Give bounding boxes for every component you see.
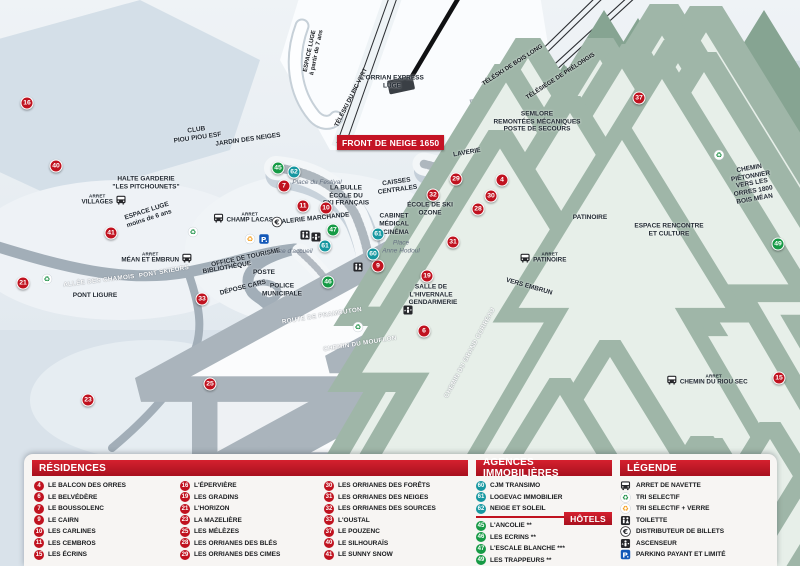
legend-item-label: TRI SELECTIF <box>636 494 680 501</box>
residence-name: LES CEMBROS <box>48 540 96 547</box>
hotel-name: LES ECRINS ** <box>490 534 536 541</box>
residence-number-badge: 31 <box>324 492 334 502</box>
map-marker: 19 <box>421 270 434 283</box>
bus-stop-name: PATINOIRE <box>533 257 566 264</box>
agencies-list: 60 CJM TRANSIMO 61 LOGEVAC IMMOBILIER 62… <box>476 480 562 515</box>
map-marker: 40 <box>50 160 63 173</box>
residence-number-badge: 40 <box>324 538 334 548</box>
residence-entry: 10 LES CARLINES <box>34 526 126 538</box>
residence-number-badge: 11 <box>34 538 44 548</box>
residence-name: LES ORRIANES DES FORÊTS <box>338 482 430 489</box>
hotel-entry: 45 L'ANCOLIE ** <box>476 520 565 532</box>
residence-name: LA MAZELIÈRE <box>194 517 242 524</box>
residences-column-3: 30 LES ORRIANES DES FORÊTS 31 LES ORRIAN… <box>324 480 436 561</box>
agency-name: LOGEVAC IMMOBILIER <box>490 494 562 501</box>
residence-name: LE BELVÉDÈRE <box>48 494 97 501</box>
residence-entry: 16 L'ÉPERVIÈRE <box>180 480 280 492</box>
map-marker: 6 <box>418 325 431 338</box>
map-label: L'ORRIAN EXPRESS LUGE <box>360 74 424 89</box>
agency-number-badge: 60 <box>476 481 486 491</box>
hotel-number-badge: 49 <box>476 555 486 565</box>
map-marker: 46 <box>322 276 335 289</box>
residence-number-badge: 25 <box>180 527 190 537</box>
map-marker: 45 <box>272 162 285 175</box>
map-marker: 11 <box>297 200 310 213</box>
map-service-icon <box>714 150 725 161</box>
agency-name: CJM TRANSIMO <box>490 482 540 489</box>
map-marker: 37 <box>633 92 646 105</box>
map-label: SEMLORE REMONTÉES MÉCANIQUES POSTE DE SE… <box>493 111 580 134</box>
residence-number-badge: 37 <box>324 527 334 537</box>
agencies-header: AGENCES IMMOBILIÈRES <box>476 460 612 476</box>
agency-name: NEIGE ET SOLEIL <box>490 505 546 512</box>
map-marker: 32 <box>427 189 440 202</box>
map-marker: 29 <box>450 173 463 186</box>
legend-item: TOILETTE <box>620 515 726 527</box>
residence-number-badge: 23 <box>180 515 190 525</box>
residence-entry: 28 LES ORRIANES DES BLÉS <box>180 538 280 550</box>
residence-entry: 7 LE BOUSSOLENC <box>34 503 126 515</box>
map-label: CINÉMA <box>383 229 409 237</box>
hotel-name: L'ANCOLIE ** <box>490 522 532 529</box>
map-marker: 28 <box>472 203 485 216</box>
map-label: ÉCOLE DE SKI OZONE <box>407 201 453 216</box>
legend-item-icon <box>620 503 631 514</box>
map-marker: 33 <box>196 293 209 306</box>
residence-entry: 4 LE BALCON DES ORRES <box>34 480 126 492</box>
bus-icon <box>116 194 127 205</box>
residence-name: L'HORIZON <box>194 505 230 512</box>
residence-name: LES MÉLÈZES <box>194 528 239 535</box>
map-marker: 61 <box>372 228 385 241</box>
legend-item: TRI SELECTIF <box>620 492 726 504</box>
residence-entry: 25 LES MÉLÈZES <box>180 526 280 538</box>
residence-name: LES ORRIANES DES NEIGES <box>338 494 428 501</box>
residence-entry: 30 LES ORRIANES DES FORÊTS <box>324 480 436 492</box>
hotel-name: L'ESCALE BLANCHE *** <box>490 545 565 552</box>
bus-icon <box>213 212 224 223</box>
bus-stop: ARRET CHEMIN DU RIOU SEC <box>666 374 747 385</box>
map-label: GENDARMERIE <box>409 299 458 307</box>
map-marker: 21 <box>17 277 30 290</box>
legende-header: LÉGENDE <box>620 460 770 476</box>
hotel-entry: 47 L'ESCALE BLANCHE *** <box>476 543 565 555</box>
residence-name: LE BOUSSOLENC <box>48 505 104 512</box>
legend-item-label: ARRET DE NAVETTE <box>636 482 701 489</box>
map-label: POSTE <box>253 269 275 277</box>
legend-item-label: TRI SELECTIF + VERRE <box>636 505 710 512</box>
residence-number-badge: 10 <box>34 527 44 537</box>
map-label: POLICE MUNICIPALE <box>262 282 302 297</box>
map-marker: 30 <box>485 190 498 203</box>
residence-number-badge: 41 <box>324 550 334 560</box>
bus-icon <box>666 374 677 385</box>
residence-name: LES ORRIANES DES CIMES <box>194 551 280 558</box>
resort-village-map: ♻ ♻ € <box>0 0 800 566</box>
agency-entry: 60 CJM TRANSIMO <box>476 480 562 492</box>
map-label: PONT LIGURE <box>73 292 117 300</box>
map-label: SALLE DE L'HIVERNALE <box>409 283 452 298</box>
bus-stop-name: VILLAGES <box>82 199 114 206</box>
residence-number-badge: 9 <box>34 515 44 525</box>
residence-entry: 11 LES CEMBROS <box>34 538 126 550</box>
legend-item-label: PARKING PAYANT ET LIMITÉ <box>636 551 726 558</box>
bus-stop-name: CHEMIN DU RIOU SEC <box>680 379 748 386</box>
legend-item: ARRET DE NAVETTE <box>620 480 726 492</box>
residences-header: RÉSIDENCES <box>32 460 468 476</box>
map-service-icon <box>403 305 414 316</box>
residence-name: LE SILHOURAÏS <box>338 540 388 547</box>
residence-entry: 15 LES ÉCRINS <box>34 549 126 561</box>
map-marker: 10 <box>320 202 333 215</box>
map-marker: 47 <box>327 224 340 237</box>
map-marker: 16 <box>21 97 34 110</box>
map-service-icon <box>42 274 53 285</box>
map-marker: 60 <box>367 248 380 261</box>
map-service-icon <box>272 217 283 228</box>
residence-entry: 33 L'OUSTAL <box>324 515 436 527</box>
residence-number-badge: 33 <box>324 515 334 525</box>
map-service-icon <box>353 262 364 273</box>
agency-entry: 61 LOGEVAC IMMOBILIER <box>476 492 562 504</box>
legend-panel: RÉSIDENCES AGENCES IMMOBILIÈRES LÉGENDE … <box>24 454 777 566</box>
bus-stop: ARRET VILLAGES <box>82 194 127 205</box>
bus-stop: ARRET CHAMP LACAS <box>213 212 273 223</box>
residence-name: LE POUZENC <box>338 528 380 535</box>
map-label: HALTE GARDERIE "LES PITCHOUNETS" <box>112 175 179 190</box>
map-service-icon <box>259 234 270 245</box>
residence-entry: 32 LES ORRIANES DES SOURCES <box>324 503 436 515</box>
agency-entry: 62 NEIGE ET SOLEIL <box>476 503 562 515</box>
bus-stop: ARRET PATINOIRE <box>520 252 567 263</box>
bus-stop-name: MÉAN ET EMBRUN <box>121 257 179 264</box>
legend-item-icon <box>620 549 631 560</box>
legend-item-label: TOILETTE <box>636 517 667 524</box>
map-marker: 41 <box>105 227 118 240</box>
residence-name: LE CAIRN <box>48 517 79 524</box>
bus-icon <box>520 252 531 263</box>
hotel-name: LES TRAPPEURS ** <box>490 557 551 564</box>
legend-item: TRI SELECTIF + VERRE <box>620 503 726 515</box>
residence-number-badge: 30 <box>324 481 334 491</box>
residence-number-badge: 7 <box>34 504 44 514</box>
hotels-header: HÔTELS <box>564 512 612 525</box>
residence-number-badge: 15 <box>34 550 44 560</box>
legend-item-icon <box>620 515 631 526</box>
legend-item-label: ASCENSEUR <box>636 540 677 547</box>
residence-name: LES ÉCRINS <box>48 551 87 558</box>
map-label: CHEMIN PIÉTONNIER VERS LES ORRES 1800 BO… <box>725 161 779 207</box>
residence-number-badge: 29 <box>180 550 190 560</box>
map-marker: 62 <box>288 166 301 179</box>
hotels-list: 45 L'ANCOLIE ** 46 LES ECRINS ** 47 L'ES… <box>476 520 565 566</box>
map-marker: 61 <box>319 240 332 253</box>
map-service-icon <box>245 234 256 245</box>
map-marker: 7 <box>278 180 291 193</box>
residence-entry: 9 LE CAIRN <box>34 515 126 527</box>
hotel-number-badge: 46 <box>476 532 486 542</box>
hotel-number-badge: 45 <box>476 521 486 531</box>
residence-name: LES ORRIANES DES SOURCES <box>338 505 436 512</box>
residences-column-1: 4 LE BALCON DES ORRES 6 LE BELVÉDÈRE 7 L… <box>34 480 126 561</box>
residence-entry: 41 LE SUNNY SNOW <box>324 549 436 561</box>
map-marker: 4 <box>496 174 509 187</box>
residence-entry: 40 LE SILHOURAÏS <box>324 538 436 550</box>
residence-number-badge: 28 <box>180 538 190 548</box>
residence-number-badge: 19 <box>180 492 190 502</box>
legend-item: ASCENSEUR <box>620 538 726 550</box>
residence-entry: 23 LA MAZELIÈRE <box>180 515 280 527</box>
residence-entry: 19 LES GRADINS <box>180 492 280 504</box>
residence-number-badge: 4 <box>34 481 44 491</box>
residence-number-badge: 16 <box>180 481 190 491</box>
legend-item: PARKING PAYANT ET LIMITÉ <box>620 549 726 561</box>
residence-number-badge: 32 <box>324 504 334 514</box>
residence-entry: 21 L'HORIZON <box>180 503 280 515</box>
hotel-number-badge: 47 <box>476 544 486 554</box>
legend-item-icon <box>620 492 631 503</box>
agency-number-badge: 62 <box>476 504 486 514</box>
residence-entry: 37 LE POUZENC <box>324 526 436 538</box>
residence-number-badge: 6 <box>34 492 44 502</box>
bus-stop: ARRET MÉAN ET EMBRUN <box>121 252 192 263</box>
hotel-entry: 46 LES ECRINS ** <box>476 532 565 544</box>
legend-item-icon <box>620 480 631 491</box>
residence-name: L'OUSTAL <box>338 517 370 524</box>
legend-item: DISTRIBUTEUR DE BILLETS <box>620 526 726 538</box>
residence-name: LE BALCON DES ORRES <box>48 482 126 489</box>
bus-stop-name: CHAMP LACAS <box>227 217 273 224</box>
residence-name: LES CARLINES <box>48 528 96 535</box>
legend-item-label: DISTRIBUTEUR DE BILLETS <box>636 528 724 535</box>
map-marker: 9 <box>372 260 385 273</box>
residence-name: LE SUNNY SNOW <box>338 551 393 558</box>
legend-item-icon <box>620 538 631 549</box>
residence-entry: 29 LES ORRIANES DES CIMES <box>180 549 280 561</box>
bus-icon <box>182 252 193 263</box>
map-label: Place Anne Hodoul <box>382 239 420 254</box>
map-service-icon <box>300 230 311 241</box>
legend-item-icon <box>620 526 631 537</box>
map-service-icon <box>353 322 364 333</box>
front-de-neige-banner: FRONT DE NEIGE 1650 <box>337 135 444 150</box>
hotel-entry: 49 LES TRAPPEURS ** <box>476 555 565 566</box>
map-marker: 49 <box>772 238 785 251</box>
map-marker: 15 <box>773 372 786 385</box>
legende-list: ARRET DE NAVETTE TRI SELECTIF TRI SELECT… <box>620 480 726 561</box>
residence-name: LES GRADINS <box>194 494 238 501</box>
map-marker: 25 <box>204 378 217 391</box>
residence-entry: 6 LE BELVÉDÈRE <box>34 492 126 504</box>
residence-name: LES ORRIANES DES BLÉS <box>194 540 277 547</box>
map-label: PATINOIRE <box>573 214 607 222</box>
map-marker: 23 <box>82 394 95 407</box>
map-marker: 31 <box>447 236 460 249</box>
map-service-icon <box>188 227 199 238</box>
agency-number-badge: 61 <box>476 492 486 502</box>
residence-number-badge: 21 <box>180 504 190 514</box>
residence-entry: 31 LES ORRIANES DES NEIGES <box>324 492 436 504</box>
residences-column-2: 16 L'ÉPERVIÈRE 19 LES GRADINS 21 L'HORIZ… <box>180 480 280 561</box>
map-label: CABINET MÉDICAL <box>379 212 409 227</box>
map-label: ESPACE RENCONTRE ET CULTURE <box>634 222 703 237</box>
residence-name: L'ÉPERVIÈRE <box>194 482 237 489</box>
